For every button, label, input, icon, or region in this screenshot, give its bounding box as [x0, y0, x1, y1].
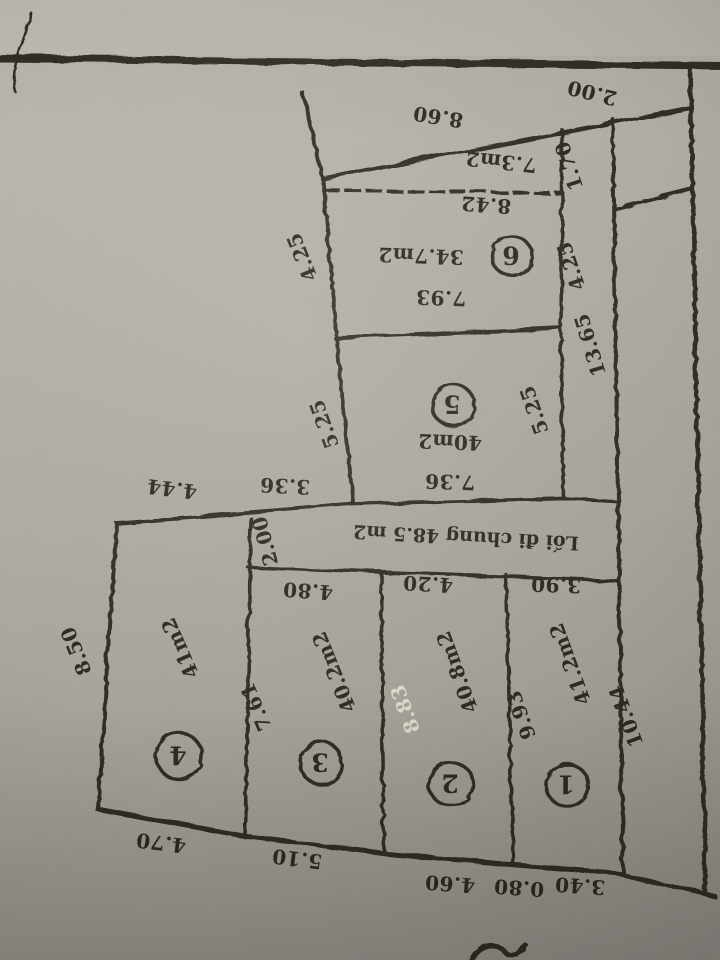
dim-4-60: 4.60 [424, 870, 476, 897]
parcel-1-number: 1 [557, 770, 574, 799]
dim-4-20: 4.20 [402, 571, 453, 598]
parcel-6-area: 34.7m2 [378, 243, 464, 270]
dim-3-40: 3.40 [554, 872, 606, 899]
dim-3-90: 3.90 [530, 572, 581, 598]
dim-0-80: 0.80 [493, 874, 545, 901]
dim-4-80: 4.80 [282, 577, 334, 604]
parcel-4-number: 4 [169, 741, 186, 770]
dim-7-36: 7.36 [424, 469, 475, 495]
dim-3-36: 3.36 [259, 473, 310, 500]
dim-8-42: 8.42 [460, 191, 512, 218]
parcel-6-number: 6 [502, 241, 519, 270]
parcel-3-number: 3 [311, 748, 328, 777]
parcel-5-area: 40m2 [418, 429, 483, 455]
parcel-5-number: 5 [443, 390, 460, 419]
dim-7-93: 7.93 [415, 285, 466, 311]
parcel-2-number: 2 [441, 769, 458, 798]
land-plot-photo: 1 2 3 4 5 6 41.2m2 40.8m2 40.2m2 41m2 40… [0, 0, 720, 960]
parcel6-5-right-edge [560, 192, 562, 497]
paper-top-strip [0, 0, 720, 56]
plot-drawing: 1 2 3 4 5 6 41.2m2 40.8m2 40.2m2 41m2 40… [0, 0, 720, 960]
